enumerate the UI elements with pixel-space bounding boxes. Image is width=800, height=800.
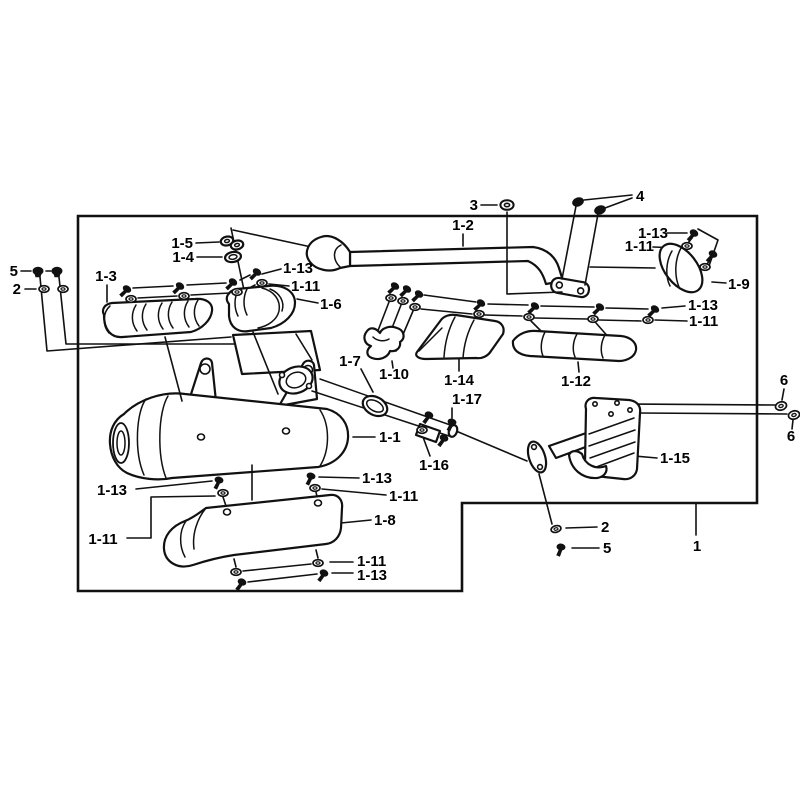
washer-icon bbox=[313, 560, 323, 567]
stay-1-15-part bbox=[524, 398, 640, 479]
callout-6-lower: 6 bbox=[787, 428, 795, 445]
bracket-1-10-part bbox=[364, 327, 403, 359]
callout-1-7: 1-7 bbox=[339, 353, 361, 370]
washer-icon bbox=[179, 293, 189, 300]
callout-1: 1 bbox=[693, 538, 701, 555]
callout-1-2: 1-2 bbox=[452, 217, 474, 234]
washer-icon bbox=[231, 569, 241, 576]
muffler-part bbox=[110, 331, 459, 479]
callout-1-12: 1-12 bbox=[561, 373, 591, 390]
callout-1-11-d: 1-11 bbox=[88, 531, 117, 548]
washer-icon bbox=[398, 298, 408, 305]
callout-1-10: 1-10 bbox=[379, 366, 409, 383]
washer-icon bbox=[417, 427, 427, 434]
ring-icon bbox=[775, 401, 788, 412]
screw-icon bbox=[704, 249, 718, 265]
callout-2-left: 2 bbox=[13, 281, 21, 298]
heat-shield-1-12-part bbox=[513, 331, 636, 361]
screw-icon bbox=[555, 543, 566, 558]
screw-icon bbox=[212, 476, 224, 491]
bolt-icon bbox=[52, 267, 63, 278]
callout-2-right: 2 bbox=[601, 519, 609, 536]
bolt-icon bbox=[593, 204, 607, 217]
callout-1-1: 1-1 bbox=[379, 429, 401, 446]
heat-shield-1-14-part bbox=[416, 315, 503, 359]
callout-4: 4 bbox=[636, 188, 645, 205]
callout-1-16: 1-16 bbox=[419, 457, 449, 474]
callout-1-11-b: 1-11 bbox=[625, 238, 654, 255]
washer-icon bbox=[232, 289, 242, 296]
callout-1-3: 1-3 bbox=[95, 268, 117, 285]
washer-icon bbox=[257, 280, 267, 287]
washer-icon bbox=[643, 317, 653, 324]
washer-icon bbox=[126, 296, 136, 303]
gasket-parts bbox=[220, 235, 244, 263]
callout-1-4: 1-4 bbox=[172, 249, 194, 266]
callout-1-9: 1-9 bbox=[728, 276, 750, 293]
exhaust-pipe-part bbox=[307, 236, 590, 298]
washer-icon bbox=[474, 311, 484, 318]
washer-icon bbox=[58, 286, 68, 293]
washer-icon bbox=[588, 316, 598, 323]
callout-1-13-a: 1-13 bbox=[283, 260, 313, 277]
screw-icon bbox=[685, 228, 699, 244]
callout-1-15: 1-15 bbox=[660, 450, 690, 467]
callout-6-upper: 6 bbox=[780, 372, 788, 389]
washer-icon bbox=[700, 264, 710, 271]
screw-icon bbox=[316, 568, 330, 584]
callout-5-left: 5 bbox=[10, 263, 18, 280]
exploded-diagram-canvas: 5 2 1-5 1-4 1-3 1-13 1-11 1-6 3 1-2 4 1-… bbox=[0, 0, 800, 800]
callout-1-11-a: 1-11 bbox=[291, 278, 320, 295]
heat-shield-1-3-part bbox=[103, 299, 212, 337]
washer-icon bbox=[524, 314, 534, 321]
callout-1-17: 1-17 bbox=[452, 391, 482, 408]
bolt-icon bbox=[33, 267, 44, 278]
callout-1-13-c: 1-13 bbox=[688, 297, 718, 314]
ring-icon bbox=[500, 200, 513, 210]
callout-1-8: 1-8 bbox=[374, 512, 396, 529]
ring-icon bbox=[788, 410, 800, 421]
callout-1-11-c: 1-11 bbox=[689, 313, 718, 330]
callout-1-14: 1-14 bbox=[444, 372, 475, 389]
callout-1-13-e: 1-13 bbox=[362, 470, 392, 487]
washer-icon bbox=[550, 525, 561, 534]
bolt-icon bbox=[571, 196, 585, 209]
callout-1-6: 1-6 bbox=[320, 296, 342, 313]
callout-1-11-e: 1-11 bbox=[389, 488, 418, 505]
screw-icon bbox=[410, 289, 425, 305]
callout-3: 3 bbox=[470, 197, 478, 214]
washer-icon bbox=[39, 286, 49, 293]
callout-5-right: 5 bbox=[603, 540, 611, 557]
washer-icon bbox=[218, 490, 228, 497]
parts-diagram-page: 5 2 1-5 1-4 1-3 1-13 1-11 1-6 3 1-2 4 1-… bbox=[0, 0, 800, 800]
washer-icon bbox=[682, 243, 692, 250]
callout-1-13-d: 1-13 bbox=[97, 482, 127, 499]
callout-1-13-f: 1-13 bbox=[357, 567, 387, 584]
washer-icon bbox=[310, 485, 320, 492]
washer-icon bbox=[410, 304, 420, 311]
heat-shield-1-8-part bbox=[164, 495, 342, 567]
washer-icon bbox=[386, 295, 396, 302]
